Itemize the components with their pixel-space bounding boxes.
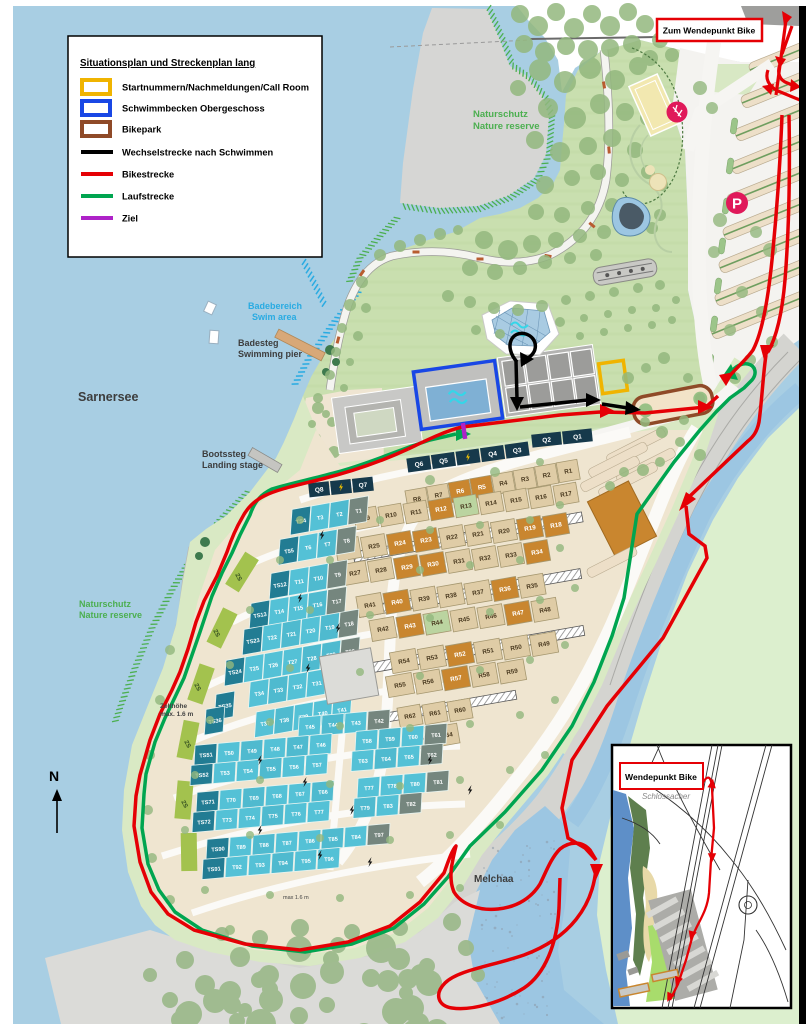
svg-text:T76: T76 xyxy=(291,812,301,819)
svg-text:Q1: Q1 xyxy=(573,433,583,441)
svg-text:T61: T61 xyxy=(431,733,441,740)
svg-text:T3: T3 xyxy=(317,515,324,522)
svg-text:T69: T69 xyxy=(249,796,259,803)
svg-text:T95: T95 xyxy=(301,859,311,866)
svg-text:Q6: Q6 xyxy=(414,461,424,469)
svg-text:T54: T54 xyxy=(243,769,254,776)
svg-text:T88: T88 xyxy=(259,843,269,850)
svg-text:T8: T8 xyxy=(343,538,350,545)
svg-text:T50: T50 xyxy=(224,751,234,758)
svg-text:T77: T77 xyxy=(314,810,324,817)
svg-text:T56: T56 xyxy=(289,765,299,772)
svg-text:T62: T62 xyxy=(427,753,437,760)
svg-text:T70: T70 xyxy=(226,798,236,805)
svg-text:T66: T66 xyxy=(318,790,328,797)
svg-text:Q7: Q7 xyxy=(358,482,368,490)
svg-text:T80: T80 xyxy=(410,782,420,789)
svg-text:T81: T81 xyxy=(433,780,443,787)
svg-text:Sarnersee: Sarnersee xyxy=(78,390,139,404)
svg-text:T46: T46 xyxy=(316,743,326,750)
svg-text:T77: T77 xyxy=(364,786,374,793)
svg-text:T2: T2 xyxy=(336,512,343,519)
svg-text:T87: T87 xyxy=(282,841,292,848)
svg-text:T73: T73 xyxy=(222,818,232,825)
svg-text:Schwimmbecken Obergeschoss: Schwimmbecken Obergeschoss xyxy=(122,104,265,114)
svg-text:Wechselstrecke nach Schwimmen: Wechselstrecke nach Schwimmen xyxy=(122,148,274,158)
svg-text:T67: T67 xyxy=(295,792,305,799)
svg-text:T93: T93 xyxy=(255,863,265,870)
svg-text:T49: T49 xyxy=(247,749,257,756)
svg-text:TS72: TS72 xyxy=(197,819,211,826)
svg-text:T45: T45 xyxy=(305,725,315,732)
svg-text:TS51: TS51 xyxy=(199,752,213,759)
svg-text:T68: T68 xyxy=(272,794,282,801)
svg-text:T1: T1 xyxy=(355,508,362,515)
svg-text:T43: T43 xyxy=(351,721,361,728)
svg-text:BadebereichSwim area: BadebereichSwim area xyxy=(248,301,302,322)
svg-text:T58: T58 xyxy=(362,739,372,746)
svg-text:Wendepunkt Bike: Wendepunkt Bike xyxy=(625,772,697,782)
svg-text:Q4: Q4 xyxy=(488,450,498,458)
svg-text:T57: T57 xyxy=(312,763,322,770)
svg-text:T86: T86 xyxy=(305,839,315,846)
svg-text:Q2: Q2 xyxy=(542,437,552,445)
svg-text:Schlossacher: Schlossacher xyxy=(642,792,690,801)
svg-text:max 1.6 m: max 1.6 m xyxy=(283,895,309,901)
svg-text:T47: T47 xyxy=(293,745,303,752)
svg-text:Situationsplan und Streckenpla: Situationsplan und Streckenplan lang xyxy=(80,58,255,69)
svg-text:T48: T48 xyxy=(270,747,280,754)
svg-text:T82: T82 xyxy=(406,802,416,809)
svg-text:Zum Wendepunkt Bike: Zum Wendepunkt Bike xyxy=(663,26,756,36)
svg-text:T92: T92 xyxy=(232,865,242,872)
svg-text:Q8: Q8 xyxy=(315,486,325,494)
svg-text:T78: T78 xyxy=(387,784,397,791)
svg-text:Q3: Q3 xyxy=(512,447,522,455)
svg-text:Melchaa: Melchaa xyxy=(474,874,514,885)
svg-text:Q5: Q5 xyxy=(439,457,449,465)
svg-text:T59: T59 xyxy=(385,737,395,744)
svg-text:T75: T75 xyxy=(268,814,278,821)
svg-text:T7: T7 xyxy=(324,542,331,549)
svg-text:T9: T9 xyxy=(334,572,341,579)
svg-text:T79: T79 xyxy=(360,806,370,813)
svg-text:T6: T6 xyxy=(305,545,312,552)
svg-text:T60: T60 xyxy=(408,735,418,742)
svg-text:T65: T65 xyxy=(404,755,414,762)
svg-text:TS91: TS91 xyxy=(207,866,221,873)
svg-text:TS71: TS71 xyxy=(201,799,215,806)
svg-text:T53: T53 xyxy=(220,771,230,778)
svg-text:T89: T89 xyxy=(236,845,246,852)
svg-text:T55: T55 xyxy=(266,767,276,774)
svg-text:TS90: TS90 xyxy=(211,846,225,853)
svg-text:Ziel: Ziel xyxy=(122,214,138,224)
svg-text:Startnummern/Nachmeldungen/Cal: Startnummern/Nachmeldungen/Call Room xyxy=(122,83,309,93)
svg-text:N: N xyxy=(49,768,59,784)
svg-text:T96: T96 xyxy=(324,857,334,864)
svg-text:T83: T83 xyxy=(383,804,393,811)
svg-text:T84: T84 xyxy=(351,835,362,842)
svg-text:T42: T42 xyxy=(374,719,384,726)
svg-text:T97: T97 xyxy=(374,833,384,840)
svg-text:T85: T85 xyxy=(328,837,338,844)
svg-text:T64: T64 xyxy=(381,757,392,764)
svg-text:T74: T74 xyxy=(245,816,256,823)
svg-text:T94: T94 xyxy=(278,861,289,868)
svg-text:P: P xyxy=(732,196,742,213)
svg-text:Laufstrecke: Laufstrecke xyxy=(122,192,174,202)
svg-text:T63: T63 xyxy=(358,759,368,766)
svg-text:Bikepark: Bikepark xyxy=(122,125,162,135)
svg-text:Bikestrecke: Bikestrecke xyxy=(122,170,174,180)
